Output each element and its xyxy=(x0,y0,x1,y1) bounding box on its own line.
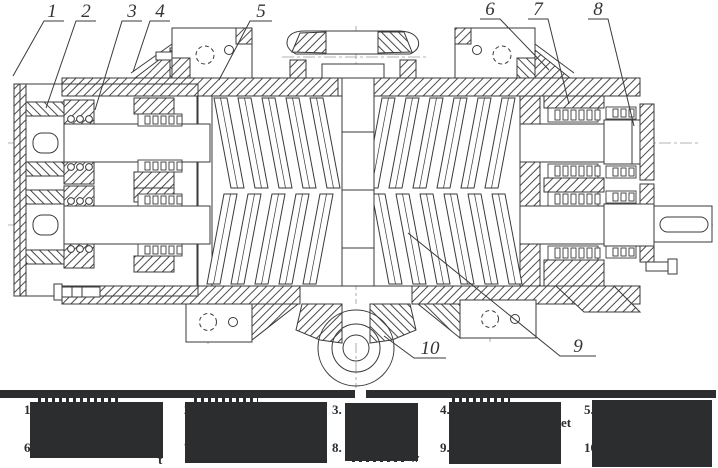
redaction-box-3 xyxy=(345,403,418,461)
callout-1: 1 xyxy=(47,1,57,22)
assembly-drawing: 1 2 3 4 5 6 7 8 9 10 xyxy=(0,0,718,390)
input-shaft-hub-upper xyxy=(26,102,64,176)
redaction-strip xyxy=(0,390,355,398)
callout-4: 4 xyxy=(155,1,165,22)
stud xyxy=(156,52,172,60)
legend-fragment-et: et xyxy=(561,415,571,431)
callout-3: 3 xyxy=(126,1,137,22)
callout-8: 8 xyxy=(593,0,603,20)
center-column xyxy=(342,78,374,286)
upper-shaft-end xyxy=(604,120,640,164)
rotor-shaft-lower-left xyxy=(64,206,210,244)
rotor-shaft-upper-left xyxy=(64,124,210,162)
callout-2: 2 xyxy=(81,1,91,22)
redaction-box-1 xyxy=(30,402,163,458)
callout-10: 10 xyxy=(421,338,441,359)
callout-7: 7 xyxy=(533,0,544,20)
legend-item-number-3: 3. xyxy=(332,402,342,418)
input-shaft-hub-lower xyxy=(26,190,64,264)
lifting-lug xyxy=(287,31,419,78)
redaction-box-2 xyxy=(185,402,327,463)
redaction-strip xyxy=(366,390,716,398)
legend-fragment-t: t xyxy=(158,452,162,468)
legend-fragment-w: w xyxy=(410,450,419,466)
callout-9: 9 xyxy=(573,336,583,357)
redaction-box-4 xyxy=(449,402,561,464)
callout-5: 5 xyxy=(256,1,266,22)
callout-6: 6 xyxy=(485,0,495,20)
legend-item-number-8: 8. xyxy=(332,440,342,456)
output-shaft xyxy=(654,206,712,242)
redaction-box-5 xyxy=(592,400,712,467)
screw-rotors xyxy=(207,78,522,286)
screenshot-stage: 1 2 3 4 5 6 7 8 9 10 1. 2. 3. 4. 5. 6. 7… xyxy=(0,0,718,468)
top-flange-right xyxy=(455,28,535,78)
